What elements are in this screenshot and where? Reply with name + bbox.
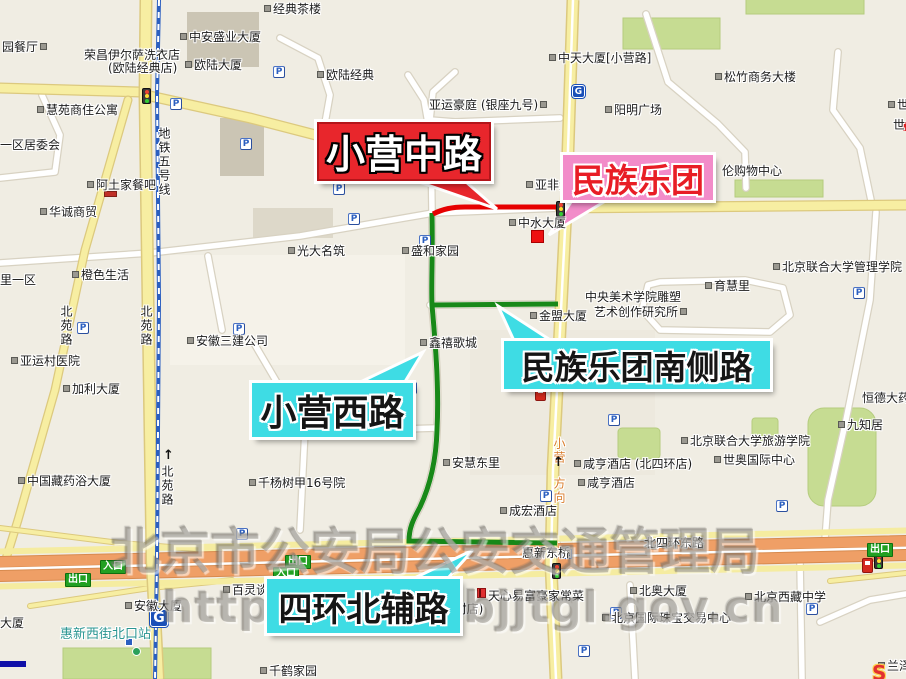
watermark-agency: 北京市公安局公安交通管理局 bbox=[110, 512, 760, 584]
poi-label: 咸亨酒店 bbox=[576, 477, 635, 490]
poi-label: 中国藏药浴大厦 bbox=[16, 475, 111, 488]
poi-label: 欧陆经典 bbox=[315, 69, 374, 82]
poi-label: 松竹商务大楼 bbox=[713, 71, 796, 84]
poi-label: 北京联合大学旅游学院 bbox=[679, 435, 810, 448]
exit-badge: 出口 bbox=[867, 543, 893, 557]
poi-marker-icon bbox=[72, 271, 79, 278]
poi-marker-icon bbox=[530, 312, 537, 319]
poi-label-text: 世 bbox=[893, 118, 905, 132]
poi-label: 慧苑商住公寓 bbox=[35, 104, 118, 117]
poi-marker-icon bbox=[63, 385, 70, 392]
parking-icon: P bbox=[608, 414, 620, 426]
poi-label-text: 盛和家园 bbox=[411, 244, 459, 258]
poi-label: 园餐厅 bbox=[2, 41, 49, 54]
parking-icon: P bbox=[853, 287, 865, 299]
poi-marker-icon bbox=[680, 308, 687, 315]
poi-marker-icon bbox=[317, 71, 324, 78]
logo-bar bbox=[0, 661, 26, 667]
poi-label-text: 安徽三建公司 bbox=[196, 334, 268, 348]
exit-badge: 出口 bbox=[65, 573, 91, 587]
poi-marker-icon bbox=[87, 181, 94, 188]
road-name-label: 北苑路 bbox=[160, 465, 173, 507]
poi-label-text: 中天大厦[小营路] bbox=[558, 51, 651, 65]
parking-icon: P bbox=[273, 66, 285, 78]
poi-marker-icon bbox=[40, 43, 47, 50]
poi-marker-icon bbox=[715, 73, 722, 80]
poi-marker-icon bbox=[773, 263, 780, 270]
poi-label-text: 经典茶楼 bbox=[273, 2, 321, 16]
poi-label-text: 中安盛业大厦 bbox=[189, 30, 261, 44]
poi-label-text: 地铁五号线 bbox=[157, 127, 171, 197]
poi-marker-icon bbox=[549, 54, 556, 61]
traffic-light-icon bbox=[556, 201, 565, 217]
poi-label: 经典茶楼 bbox=[262, 3, 321, 16]
poi-label-text: 阿土家餐吧 bbox=[96, 178, 156, 192]
poi-label-text: 慧苑商住公寓 bbox=[46, 103, 118, 117]
poi-label-text: 北京联合大学旅游学院 bbox=[690, 434, 810, 448]
callout-xiaoying-west-road: 小营西路 bbox=[252, 383, 413, 437]
poi-label: 亚运村医院 bbox=[9, 355, 80, 368]
poi-marker-icon bbox=[180, 33, 187, 40]
poi-label: 一区居委会 bbox=[0, 139, 60, 152]
poi-marker-icon bbox=[574, 460, 581, 467]
poi-label-text: 世纪 bbox=[897, 98, 906, 112]
poi-label: 惠新西街北口站 bbox=[60, 628, 151, 641]
poi-marker-icon bbox=[540, 101, 547, 108]
parking-icon: P bbox=[578, 645, 590, 657]
poi-label: 伦购物中心 bbox=[722, 165, 782, 178]
poi-label-text: 华诚商贸 bbox=[49, 205, 97, 219]
parking-icon: P bbox=[170, 98, 182, 110]
road-name-label: 北苑路 bbox=[59, 305, 72, 347]
poi-marker-icon bbox=[264, 5, 271, 12]
callout-minzu-orchestra: 民族乐团 bbox=[563, 155, 713, 200]
poi-label-text: 加利大厦 bbox=[72, 382, 120, 396]
destination-marker bbox=[531, 230, 544, 243]
parking-icon: P bbox=[77, 322, 89, 334]
poi-label: 九知居 bbox=[836, 419, 883, 432]
poi-label-text: 艺术创作研究所 bbox=[594, 305, 678, 319]
poi-label: 亚运豪庭 (银座九号) bbox=[429, 99, 549, 112]
poi-label: 千杨树甲16号院 bbox=[247, 477, 345, 490]
poi-label-text: 亚运豪庭 (银座九号) bbox=[429, 98, 538, 112]
poi-label: 世 bbox=[893, 119, 905, 132]
poi-label-text: 北苑路 bbox=[59, 305, 73, 347]
poi-marker-icon bbox=[187, 337, 194, 344]
poi-marker-icon bbox=[509, 219, 516, 226]
poi-label: 安徽三建公司 bbox=[185, 335, 268, 348]
poi-label: 中安盛业大厦 bbox=[178, 31, 261, 44]
poi-marker-icon bbox=[838, 421, 845, 428]
poi-label: 阳明广场 bbox=[603, 104, 662, 117]
poi-label-text: 咸亨酒店 (北四环店) bbox=[583, 457, 692, 471]
poi-label: 艺术创作研究所 bbox=[594, 306, 689, 319]
poi-marker-icon bbox=[185, 61, 192, 68]
traffic-light-icon bbox=[142, 88, 151, 104]
poi-marker-icon bbox=[714, 456, 721, 463]
poi-label: 中水大厦 bbox=[507, 217, 566, 230]
poi-label-text: 安慧东里 bbox=[452, 456, 500, 470]
subway-exit-icon bbox=[132, 647, 141, 656]
callout-xiaoying-middle-road: 小营中路 bbox=[317, 122, 491, 181]
poi-marker-icon bbox=[443, 459, 450, 466]
gas-station-icon bbox=[862, 558, 873, 573]
poi-marker-icon bbox=[37, 106, 44, 113]
poi-label: 里一区 bbox=[0, 274, 36, 287]
poi-label-text: 北京联合大学管理学院 bbox=[782, 260, 902, 274]
poi-label-text: 金盟大厦 bbox=[539, 309, 587, 323]
poi-label-text: 一区居委会 bbox=[0, 138, 60, 152]
poi-marker-icon bbox=[402, 247, 409, 254]
poi-label-text: 世奥国际中心 bbox=[723, 453, 795, 467]
map-provider-logo: S bbox=[872, 661, 886, 679]
poi-label-text: 中水大厦 bbox=[518, 216, 566, 230]
poi-label-text: 咸亨酒店 bbox=[587, 476, 635, 490]
poi-label-text: 园餐厅 bbox=[2, 40, 38, 54]
poi-marker-icon bbox=[40, 208, 47, 215]
poi-label: 中天大厦[小营路] bbox=[547, 52, 651, 65]
poi-label: 世纪 bbox=[886, 99, 906, 112]
watermark-url: http://www.bjjtgl.gov.cn bbox=[162, 582, 783, 633]
poi-label-text: 九知居 bbox=[847, 418, 883, 432]
parking-icon: P bbox=[806, 603, 818, 615]
poi-label-text: 阳明广场 bbox=[614, 103, 662, 117]
poi-label: 安慧东里 bbox=[441, 457, 500, 470]
poi-label: 千鹤家园 bbox=[258, 665, 317, 678]
road-name-label: 北苑路 bbox=[139, 305, 152, 347]
poi-marker-icon bbox=[260, 667, 267, 674]
poi-marker-icon bbox=[18, 477, 25, 484]
poi-label: 鑫禧歌城 bbox=[418, 337, 477, 350]
poi-label: 恒德大药 bbox=[862, 392, 906, 405]
poi-label: 大厦 bbox=[0, 617, 24, 630]
north-arrow-icon: ↑ bbox=[553, 456, 564, 469]
poi-label-text: 北苑路 bbox=[139, 305, 153, 347]
poi-marker-icon bbox=[420, 339, 427, 346]
poi-label: 咸亨酒店 (北四环店) bbox=[572, 458, 692, 471]
map-canvas[interactable]: 经典茶楼园餐厅中安盛业大厦荣昌伊尔萨洗衣店(欧陆经典店)欧陆大厦欧陆经典亚运豪庭… bbox=[0, 0, 906, 679]
parking-icon: P bbox=[348, 213, 360, 225]
poi-label: 金盟大厦 bbox=[528, 310, 587, 323]
poi-label-text: 橙色生活 bbox=[81, 268, 129, 282]
poi-label-text: 松竹商务大楼 bbox=[724, 70, 796, 84]
poi-label: 北京联合大学管理学院 bbox=[771, 261, 902, 274]
poi-label: 华诚商贸 bbox=[38, 206, 97, 219]
parking-icon: P bbox=[776, 500, 788, 512]
poi-label-text: 育慧里 bbox=[714, 279, 750, 293]
poi-label-text: 欧陆经典 bbox=[326, 68, 374, 82]
poi-label: (欧陆经典店) bbox=[108, 62, 177, 75]
road-name-label: 方向 bbox=[552, 477, 565, 505]
poi-label: 加利大厦 bbox=[61, 383, 120, 396]
poi-label: 世奥国际中心 bbox=[712, 454, 795, 467]
poi-marker-icon bbox=[288, 247, 295, 254]
poi-label: 欧陆大厦 bbox=[183, 59, 242, 72]
poi-label-text: 光大名筑 bbox=[297, 244, 345, 258]
poi-label-text: 兰泽宝 bbox=[887, 659, 906, 673]
poi-label: 育慧里 bbox=[703, 280, 750, 293]
poi-label-text: 千鹤家园 bbox=[269, 664, 317, 678]
poi-marker-icon bbox=[578, 479, 585, 486]
poi-label: 光大名筑 bbox=[286, 245, 345, 258]
poi-label-text: 伦购物中心 bbox=[722, 164, 782, 178]
poi-marker-icon bbox=[888, 101, 895, 108]
poi-label-text: 荣昌伊尔萨洗衣店 bbox=[84, 48, 180, 62]
poi-label-text: 惠新西街北口站 bbox=[60, 627, 151, 642]
road-name-label: 地铁五号线 bbox=[157, 127, 170, 197]
subway-logo-icon: G bbox=[572, 85, 585, 98]
poi-label-text: 亚运村医院 bbox=[20, 354, 80, 368]
parking-icon: P bbox=[240, 138, 252, 150]
north-arrow-icon: ↑ bbox=[163, 449, 174, 462]
poi-label-text: 鑫禧歌城 bbox=[429, 336, 477, 350]
poi-label: 盛和家园 bbox=[400, 245, 459, 258]
poi-label-text: 北苑路 bbox=[160, 465, 174, 507]
poi-marker-icon bbox=[526, 181, 533, 188]
callout-fourth-ring-north-aux-road: 四环北辅路 bbox=[267, 579, 460, 633]
poi-label-text: 大厦 bbox=[0, 616, 24, 630]
poi-label-text: 中国藏药浴大厦 bbox=[27, 474, 111, 488]
poi-label-text: 千杨树甲16号院 bbox=[258, 476, 345, 490]
poi-label-text: 中央美术学院雕塑 bbox=[585, 290, 681, 304]
parking-icon: P bbox=[540, 490, 552, 502]
poi-label: 中央美术学院雕塑 bbox=[585, 291, 681, 304]
poi-marker-icon bbox=[125, 602, 132, 609]
poi-label-text: 里一区 bbox=[0, 273, 36, 287]
poi-marker-icon bbox=[11, 357, 18, 364]
poi-label-text: 方向 bbox=[552, 477, 566, 505]
poi-marker-icon bbox=[705, 282, 712, 289]
poi-marker-icon bbox=[605, 106, 612, 113]
poi-marker-icon bbox=[681, 437, 688, 444]
poi-marker-icon bbox=[249, 479, 256, 486]
poi-label-text: 恒德大药 bbox=[862, 391, 906, 405]
poi-label-text: (欧陆经典店) bbox=[108, 61, 177, 75]
poi-label-text: 欧陆大厦 bbox=[194, 58, 242, 72]
parking-icon: P bbox=[333, 183, 345, 195]
poi-label: 阿土家餐吧 bbox=[85, 179, 156, 192]
poi-label: 橙色生活 bbox=[70, 269, 129, 282]
callout-minzu-orchestra-south-road: 民族乐团南侧路 bbox=[504, 341, 770, 389]
